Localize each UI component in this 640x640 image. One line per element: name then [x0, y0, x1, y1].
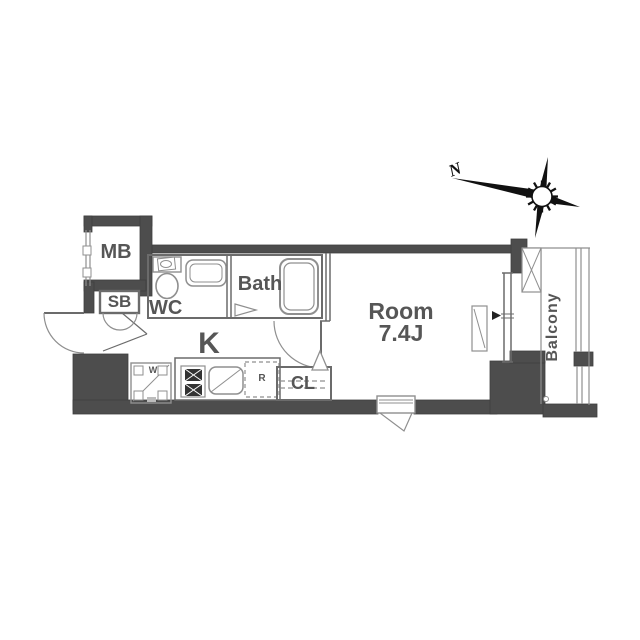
balcony-drain [544, 397, 549, 402]
wall-mb-left-stub-top [84, 216, 92, 232]
meter-box [83, 230, 91, 286]
bath-door-marker [235, 304, 256, 316]
entry-door-arc [44, 313, 84, 353]
kitchen-label: K [184, 327, 234, 361]
closet-label: CL [283, 373, 323, 394]
entrance-door [44, 313, 84, 353]
refrigerator-label: R [254, 373, 270, 384]
mb-hinge-top [83, 246, 91, 255]
wall-balcony-right-block [574, 352, 593, 366]
washer-drain [147, 397, 156, 402]
washer-pad-4 [158, 391, 167, 400]
genkan-door-line [122, 313, 147, 334]
sink-diagonal [211, 369, 241, 392]
sb-door-arc-left [103, 313, 120, 330]
floor-plan: MB SB WC Bath K Room 7.4J CL Balcony W R… [0, 0, 640, 640]
compass-rose [532, 187, 552, 207]
sb-door-arc-right [120, 313, 137, 330]
wall-top [152, 245, 513, 253]
wc-label: WC [149, 297, 182, 320]
bath-label: Bath [232, 273, 288, 296]
sliding-window [492, 273, 514, 362]
wall-mb-left-stub-bottom [84, 282, 94, 313]
mb-hinge-bottom [83, 268, 91, 277]
genkan-step-line [103, 334, 147, 351]
washer-pad-3 [134, 391, 143, 400]
room-label: Room 7.4J [351, 300, 451, 344]
balcony-label: Balcony [544, 282, 562, 372]
wall-balcony-bottom [543, 404, 597, 417]
toilet [153, 257, 181, 299]
wall-corner-step [510, 351, 545, 363]
washer-label: W [145, 365, 161, 375]
ac-unit [472, 306, 487, 351]
sb-label: SB [100, 292, 139, 312]
washbasin [186, 260, 226, 286]
wall-corner-block [490, 361, 545, 414]
bottom-window-frame [377, 396, 415, 413]
wall-bottom-left [73, 400, 378, 414]
room-size: 7.4J [379, 320, 424, 346]
closet-door-marker [312, 351, 328, 370]
room-door [274, 321, 321, 368]
washer-pad-1 [134, 366, 143, 375]
mb-label: MB [92, 241, 140, 264]
wall-bottom-right [414, 400, 497, 414]
opening-direction-arrow [492, 311, 501, 320]
compass [452, 157, 580, 238]
bathtub-inner [284, 263, 314, 310]
toilet-bowl [156, 274, 178, 299]
bottom-window [377, 396, 415, 431]
bottom-window-swing [380, 413, 412, 431]
room-door-arc [274, 321, 321, 368]
